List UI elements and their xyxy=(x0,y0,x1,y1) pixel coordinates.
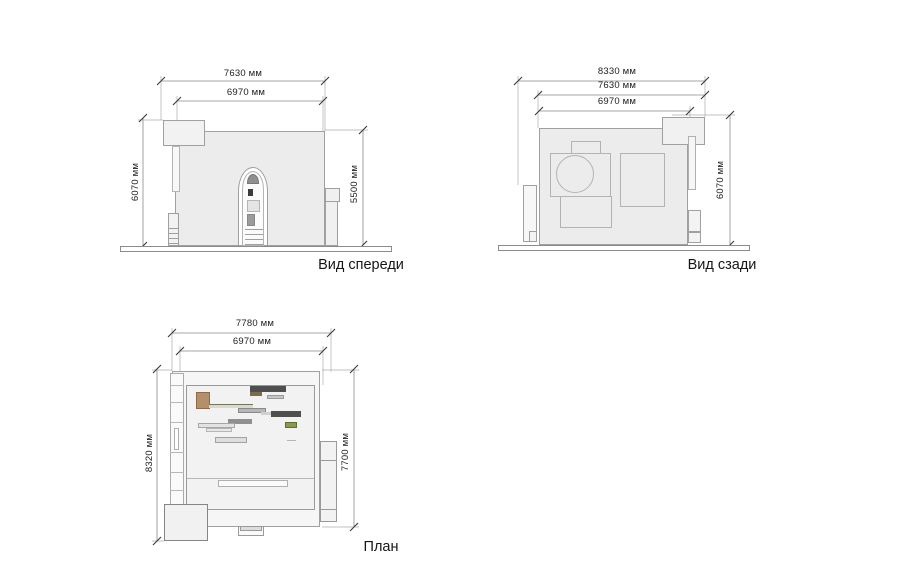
plan-dim-top-outer: 7780 мм xyxy=(215,318,295,330)
rear-right-block-base xyxy=(688,232,701,243)
front-chimney-block xyxy=(163,120,205,146)
drawing-canvas: 7630 мм 6970 мм 6070 мм 5500 мм Вид спер… xyxy=(0,0,900,585)
rear-chimney-block xyxy=(662,117,705,145)
plan-entry-step-top xyxy=(240,526,262,531)
rear-dim-top-outer: 8330 мм xyxy=(577,66,657,78)
plan-furniture-gray-1 xyxy=(267,395,284,399)
plan-wall-divider xyxy=(170,402,184,403)
plan-dim-right: 7700 мм xyxy=(340,412,352,492)
plan-right-annex-divider xyxy=(320,460,337,461)
plan-view-title: План xyxy=(311,539,451,556)
plan-room-partition-line xyxy=(187,478,314,479)
rear-ground-plate xyxy=(498,245,750,251)
rear-view-title: Вид сзади xyxy=(652,257,792,274)
front-dim-top-outer: 7630 мм xyxy=(203,68,283,80)
rear-dim-top-mid: 7630 мм xyxy=(577,80,657,92)
plan-furniture-dark-2 xyxy=(271,411,301,417)
front-door-panel-light xyxy=(247,200,260,212)
front-dim-top-inner: 6970 мм xyxy=(206,87,286,99)
plan-dim-left: 8320 мм xyxy=(144,413,156,493)
plan-right-annex-divider xyxy=(320,509,337,510)
front-ground-plate xyxy=(120,246,392,252)
front-dim-right: 5500 мм xyxy=(349,144,361,224)
plan-wall-divider xyxy=(170,385,184,386)
rear-right-strip xyxy=(688,136,696,190)
dimension-linework xyxy=(0,0,900,585)
rear-relief-circle xyxy=(556,155,594,193)
front-door-panel-gray xyxy=(247,214,255,226)
plan-furniture-green xyxy=(285,422,297,428)
rear-dim-right: 6070 мм xyxy=(715,140,727,220)
front-side-ladder-rungs xyxy=(169,228,178,246)
front-drainpipe xyxy=(172,146,180,192)
rear-dim-top-inner: 6970 мм xyxy=(577,96,657,108)
rear-right-block xyxy=(688,210,701,232)
plan-furniture-light-2 xyxy=(206,428,232,432)
plan-wall-divider xyxy=(170,422,184,423)
plan-corner-annex xyxy=(164,504,208,541)
plan-furniture-mark xyxy=(287,440,296,441)
plan-wall-divider xyxy=(170,472,184,473)
front-dim-left: 6070 мм xyxy=(130,142,142,222)
rear-left-block-base xyxy=(529,231,537,242)
plan-staircase xyxy=(196,392,210,409)
rear-relief-bottom xyxy=(560,196,612,228)
plan-furniture-light-3 xyxy=(215,437,247,443)
plan-window-opening xyxy=(174,428,179,450)
rear-relief-right xyxy=(620,153,665,207)
front-door-steps xyxy=(245,229,263,246)
front-door-handle xyxy=(248,189,253,196)
plan-wall-divider xyxy=(170,490,184,491)
plan-dim-top-inner: 6970 мм xyxy=(212,336,292,348)
plan-furniture-brown xyxy=(250,392,262,396)
front-side-unit-cap xyxy=(325,188,340,202)
plan-wall-divider xyxy=(170,452,184,453)
plan-recessed-niche xyxy=(218,480,288,487)
front-side-unit-body xyxy=(325,201,338,246)
front-view-title: Вид спереди xyxy=(291,257,431,274)
